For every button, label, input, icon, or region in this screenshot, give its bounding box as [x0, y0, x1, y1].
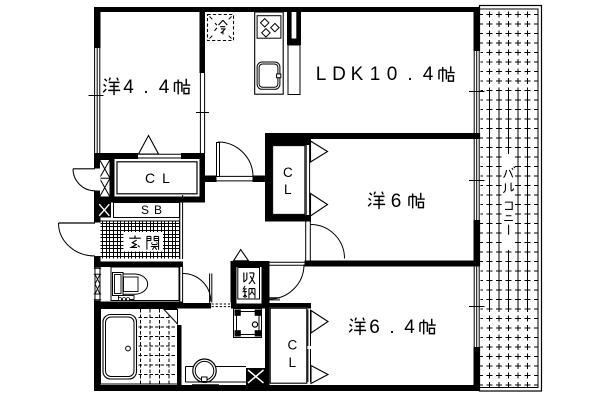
svg-text:6: 6	[369, 317, 380, 338]
svg-text:D: D	[332, 64, 346, 85]
svg-text:4: 4	[404, 317, 415, 338]
svg-text:SB: SB	[141, 203, 167, 217]
svg-text:L: L	[289, 355, 297, 370]
svg-text:.: .	[389, 317, 394, 338]
svg-text:CL: CL	[145, 170, 177, 186]
svg-text:1: 1	[370, 64, 381, 85]
svg-text:C: C	[288, 338, 298, 353]
svg-text:6: 6	[391, 191, 402, 212]
svg-text:L: L	[284, 182, 292, 197]
svg-text:.: .	[407, 64, 412, 85]
svg-text:L: L	[316, 64, 327, 85]
svg-text:4: 4	[423, 64, 434, 85]
svg-text:C: C	[283, 165, 293, 180]
svg-text:0: 0	[387, 64, 398, 85]
svg-text:K: K	[351, 64, 364, 85]
svg-text:4: 4	[123, 77, 134, 98]
svg-text:4: 4	[159, 77, 170, 98]
svg-text:.: .	[143, 77, 148, 98]
